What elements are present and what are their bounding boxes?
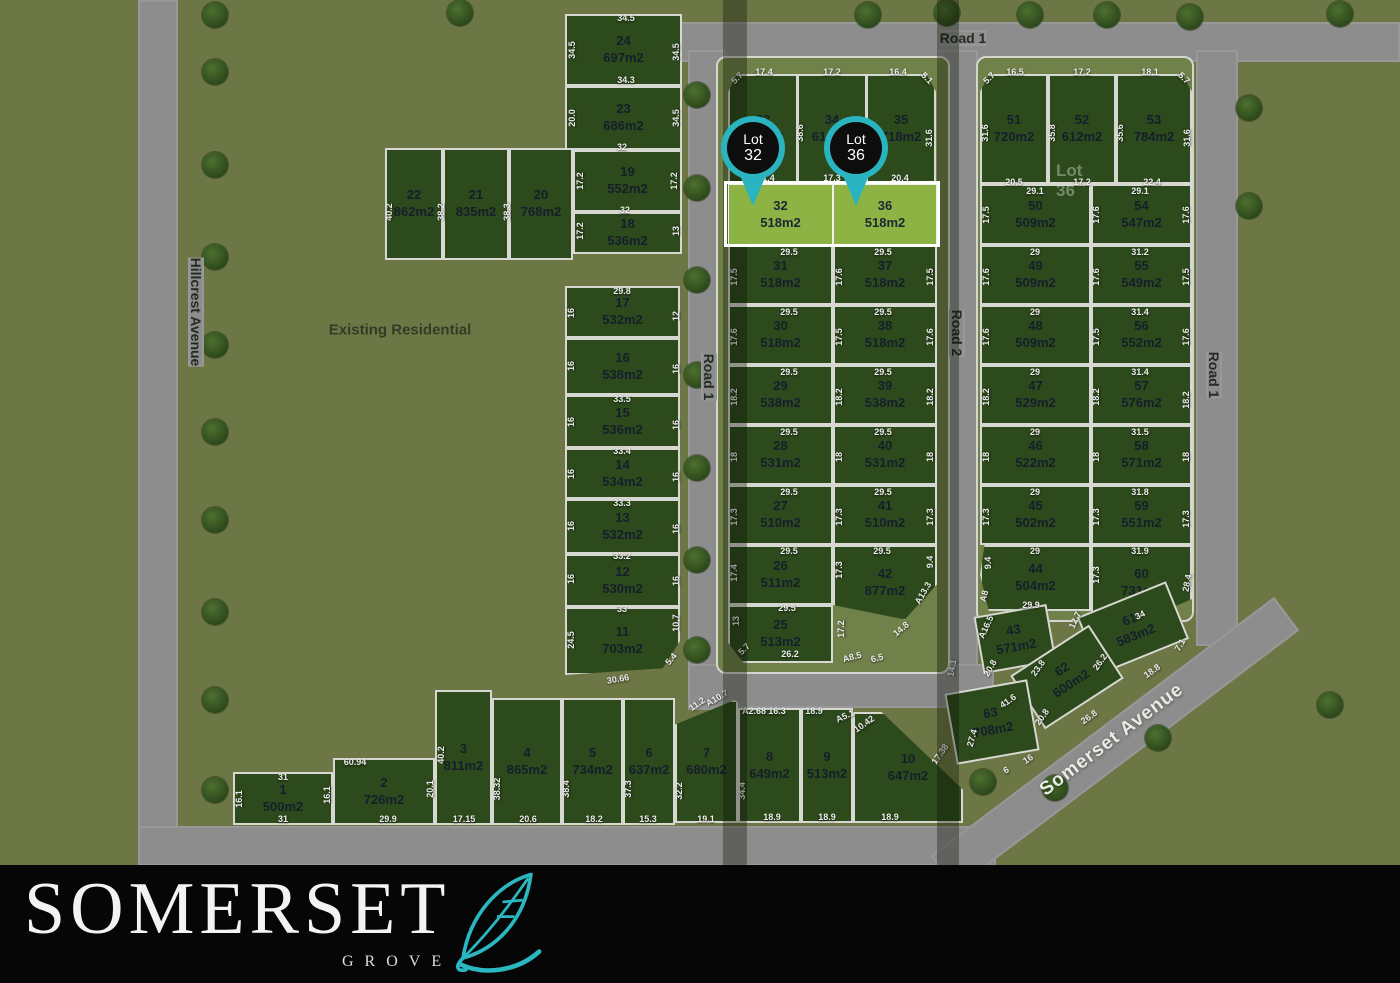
dimension-label: 17.6: [1181, 328, 1191, 346]
lot-number: 38: [878, 318, 892, 335]
dimension-label: 29.5: [874, 487, 892, 497]
lot-area: 509m2: [1015, 335, 1055, 352]
lot-area: 513m2: [807, 766, 847, 783]
dimension-label: 26.8: [1079, 708, 1099, 726]
dimension-label: 31.6: [924, 129, 934, 147]
lot-number: 1: [279, 782, 286, 799]
dimension-label: 17.5: [925, 268, 935, 286]
lot-12: 12530m2: [565, 554, 680, 607]
lot-number: 8: [766, 749, 773, 766]
dimension-label: 16: [566, 469, 576, 479]
dimension-label: 20.5: [1005, 177, 1023, 187]
tree-icon: [684, 455, 710, 481]
dimension-label: 17.6: [1091, 206, 1101, 224]
lot-area: 680m2: [686, 762, 726, 779]
dimension-label: 17.2: [823, 67, 841, 77]
lot-number: 45: [1028, 498, 1042, 515]
lot-area: 571m2: [995, 635, 1038, 659]
lot-area: 518m2: [865, 335, 905, 352]
dimension-label: 16: [566, 521, 576, 531]
lot-area: 686m2: [603, 118, 643, 135]
lot-number: 17: [615, 295, 629, 312]
dimension-label: 37.3: [623, 780, 633, 798]
dimension-label: 16: [671, 524, 681, 534]
lot-area: 865m2: [507, 762, 547, 779]
dimension-label: 33: [617, 604, 627, 614]
pin-lot-32[interactable]: Lot32: [721, 116, 785, 218]
dimension-label: 17.3: [981, 508, 991, 526]
dimension-label: 29: [1030, 367, 1040, 377]
lot-area: 538m2: [602, 367, 642, 384]
dimension-label: 18.2: [1091, 388, 1101, 406]
dimension-label: 29: [1030, 427, 1040, 437]
existing-residential-label: Existing Residential: [329, 322, 472, 339]
lot-number: 14: [615, 457, 629, 474]
lot-number: 50: [1028, 198, 1042, 215]
tree-icon: [202, 2, 228, 28]
dimension-label: 29.5: [780, 487, 798, 497]
dimension-label: 17.6: [981, 328, 991, 346]
lot-area: 504m2: [1015, 578, 1055, 595]
dimension-label: 34.5: [567, 41, 577, 59]
dimension-label: 17.5: [1091, 328, 1101, 346]
lot-number: 9: [823, 749, 830, 766]
lot-number: 6: [645, 745, 652, 762]
lot-area: 536m2: [602, 422, 642, 439]
dimension-label: 31.2: [1131, 247, 1149, 257]
dimension-label: 29.5: [780, 546, 798, 556]
dimension-label: 29.5: [873, 546, 891, 556]
dimension-label: 6: [1001, 764, 1010, 775]
lot-23: 23686m2: [565, 86, 682, 150]
lot-area: 637m2: [629, 762, 669, 779]
dimension-label: 18.2: [925, 388, 935, 406]
dimension-label: 32.2: [674, 782, 684, 800]
dimension-label: 33.2: [613, 551, 631, 561]
somerset-grove-masterplan: 24697m223686m219552m218536m222862m221835…: [0, 0, 1400, 983]
dimension-label: 33.4: [613, 446, 631, 456]
dimension-label: 29.9: [1022, 600, 1040, 610]
lot-number: 35: [894, 112, 908, 129]
dimension-label: 16.4: [889, 67, 907, 77]
lot-area: 647m2: [888, 768, 928, 785]
road-1-right: [1196, 50, 1238, 646]
tree-icon: [1177, 4, 1203, 30]
lot-number: 30: [773, 318, 787, 335]
dimension-label: 17.15: [453, 814, 476, 824]
logo-banner: SOMERSET GROVE: [0, 865, 1400, 983]
dimension-label: 29.5: [780, 247, 798, 257]
dimension-label: 29.8: [613, 286, 631, 296]
dimension-label: 20.0: [567, 109, 577, 127]
lot-area: 530m2: [602, 581, 642, 598]
dimension-label: 29.1: [1026, 186, 1044, 196]
lot-8: 8649m2: [738, 708, 801, 823]
dimension-label: 18.2: [834, 388, 844, 406]
tree-icon: [684, 175, 710, 201]
dimension-label: 13: [671, 226, 681, 236]
tree-icon: [684, 547, 710, 573]
dimension-label: 16: [671, 420, 681, 430]
dimension-label: 35.8: [1047, 124, 1057, 142]
lot-number: 18: [620, 216, 634, 233]
lot-area: 552m2: [1121, 335, 1161, 352]
dimension-label: 16: [671, 364, 681, 374]
dimension-label: 18.9: [881, 812, 899, 822]
dimension-label: 40.2: [436, 746, 446, 764]
tree-icon: [202, 152, 228, 178]
dimension-label: 60.94: [344, 757, 367, 767]
lot-number: 39: [878, 378, 892, 395]
pin-label: Lot36: [824, 116, 888, 180]
hillcrest-avenue-road: [138, 0, 178, 865]
dimension-label: 16.1: [322, 786, 332, 804]
dimension-label: 40.2: [384, 203, 394, 221]
lot-number: 15: [615, 405, 629, 422]
dimension-label: 18.1: [1141, 67, 1159, 77]
dimension-label: 29.5: [874, 307, 892, 317]
feather-icon: [442, 867, 552, 981]
road-1-right-label: Road 1: [1206, 352, 1222, 399]
lot-11: 11703m2: [565, 607, 680, 675]
logo-title: SOMERSET: [24, 867, 451, 952]
dimension-label: 35.6: [1115, 124, 1125, 142]
dimension-label: 31.4: [1131, 307, 1149, 317]
dimension-label: 34.5: [617, 13, 635, 23]
dimension-label: 17.3: [1091, 508, 1101, 526]
dimension-label: 18.9: [763, 812, 781, 822]
lot-number: 21: [469, 187, 483, 204]
tree-icon: [202, 59, 228, 85]
lot-area: 510m2: [865, 515, 905, 532]
lot-area: 768m2: [521, 204, 561, 221]
lot-area: 551m2: [1121, 515, 1161, 532]
lot-area: 536m2: [607, 233, 647, 250]
dimension-label: 29.5: [874, 427, 892, 437]
lot-number: 19: [620, 164, 634, 181]
dimension-label: 17.3: [834, 508, 844, 526]
tree-icon: [1236, 95, 1262, 121]
lot-area: 518m2: [865, 275, 905, 292]
lot-number: 24: [616, 33, 630, 50]
dimension-label: 17.2: [1073, 67, 1091, 77]
dimension-label: 34.5: [671, 109, 681, 127]
dimension-label: 16.5: [1006, 67, 1024, 77]
dimension-label: 31: [278, 814, 288, 824]
lot-area: 862m2: [394, 204, 434, 221]
dimension-label: 15.3: [639, 814, 657, 824]
dimension-label: 18: [1091, 452, 1101, 462]
lot-number: 57: [1134, 378, 1148, 395]
dimension-label: 29.5: [874, 247, 892, 257]
lot-area: 518m2: [760, 275, 800, 292]
dimension-label: 18.8: [1142, 662, 1162, 680]
lot-number: 11: [616, 624, 630, 641]
tree-icon: [1017, 2, 1043, 28]
dimension-label: 16: [566, 574, 576, 584]
lot-area: 510m2: [760, 515, 800, 532]
dimension-label: 38.32: [492, 778, 502, 801]
dimension-label: 19.1: [697, 814, 715, 824]
tree-icon: [970, 769, 996, 795]
dimension-label: 17.5: [1181, 268, 1191, 286]
dimension-label: 16: [566, 308, 576, 318]
lot-number: 23: [616, 101, 630, 118]
lot-number: 16: [615, 350, 629, 367]
lot-number: 3: [460, 741, 467, 758]
dimension-label: 31.6: [980, 124, 990, 142]
dimension-label: 17.2: [836, 620, 846, 638]
lot-area: 522m2: [1015, 455, 1055, 472]
lot-number: 13: [615, 510, 629, 527]
dimension-label: 16.1: [234, 790, 244, 808]
dimension-label: 17.5: [981, 206, 991, 224]
lot-number: 48: [1028, 318, 1042, 335]
lot-area: 703m2: [602, 641, 642, 658]
logo-subtitle: GROVE: [342, 953, 452, 971]
lot-number: 58: [1134, 438, 1148, 455]
dimension-label: 17.6: [981, 268, 991, 286]
dimension-label: 9.4: [983, 557, 993, 570]
dimension-label: 18.2: [585, 814, 603, 824]
lot-area: 511m2: [761, 575, 801, 592]
dimension-label: 16: [566, 361, 576, 371]
tree-icon: [1327, 1, 1353, 27]
dimension-label: 17.5: [834, 328, 844, 346]
dimension-label: 29: [1030, 307, 1040, 317]
lot-number: 22: [407, 187, 421, 204]
lot-area: 649m2: [749, 766, 789, 783]
lot-number: 5: [589, 745, 596, 762]
lot-area: 571m2: [1121, 455, 1161, 472]
lot-number: 54: [1134, 198, 1148, 215]
lot-number: 28: [773, 438, 787, 455]
lot-area: 529m2: [1015, 395, 1055, 412]
tree-icon: [684, 637, 710, 663]
lot-area: 500m2: [263, 799, 303, 816]
dimension-label: 18: [834, 452, 844, 462]
dimension-label: 9.4: [925, 556, 935, 569]
lot-number: 55: [1134, 258, 1148, 275]
lot-53: 53784m2: [1116, 74, 1192, 184]
dimension-label: 16: [1021, 752, 1035, 766]
lot-number: 60: [1134, 566, 1148, 583]
dimension-label: 30.66: [606, 672, 630, 686]
lot-number: 2: [380, 775, 387, 792]
lot-number: 44: [1028, 561, 1042, 578]
lot-number: 10: [901, 751, 915, 768]
tree-icon: [202, 244, 228, 270]
dimension-label: 29.5: [780, 307, 798, 317]
lot-area: 697m2: [603, 50, 643, 67]
dimension-label: 17.3: [1181, 510, 1191, 528]
lot-area: 531m2: [865, 455, 905, 472]
lot-area: 877m2: [865, 583, 905, 600]
pin-label: Lot32: [721, 116, 785, 180]
dimension-label: 29.1: [1131, 186, 1149, 196]
dimension-label: 16: [671, 576, 681, 586]
dimension-label: 34.5: [671, 43, 681, 61]
dimension-label: 17.3: [834, 561, 844, 579]
dimension-label: 29.5: [778, 603, 796, 613]
dimension-label: 26.2: [781, 649, 799, 659]
lot-area: 835m2: [456, 204, 496, 221]
lot-6: 6637m2: [623, 698, 675, 825]
subdivision-map: 24697m223686m219552m218536m222862m221835…: [0, 0, 1400, 865]
lot-number: 47: [1028, 378, 1042, 395]
dimension-label: 12: [671, 311, 681, 321]
lot-number: 20: [534, 187, 548, 204]
tree-icon: [202, 777, 228, 803]
dimension-label: 38.3: [502, 203, 512, 221]
tree-icon: [202, 332, 228, 358]
dimension-label: 16.3: [768, 706, 786, 716]
lot-number: 59: [1134, 498, 1148, 515]
dimension-label: 38.6: [795, 124, 805, 142]
tree-icon: [684, 82, 710, 108]
lot-area: 532m2: [602, 312, 642, 329]
tree-icon: [202, 507, 228, 533]
dimension-label: 17.6: [925, 328, 935, 346]
tree-icon: [447, 0, 473, 26]
tree-icon: [1145, 725, 1171, 751]
lot-area: 532m2: [602, 527, 642, 544]
lot-number: 4: [523, 745, 530, 762]
dimension-label: 29: [1030, 487, 1040, 497]
dimension-label: 29.5: [874, 367, 892, 377]
dimension-label: 29: [1030, 546, 1040, 556]
dimension-label: 29: [1030, 247, 1040, 257]
tree-icon: [202, 599, 228, 625]
dimension-label: 20.6: [519, 814, 537, 824]
dimension-label: 17.6: [1091, 268, 1101, 286]
dimension-label: 31.4: [1131, 367, 1149, 377]
hillcrest-avenue-label: Hillcrest Avenue: [188, 258, 204, 367]
lot-area: 538m2: [865, 395, 905, 412]
lot-area: 502m2: [1015, 515, 1055, 532]
tree-icon: [202, 687, 228, 713]
dimension-label: 18.2: [1181, 391, 1191, 409]
dimension-label: 33.5: [613, 394, 631, 404]
dimension-label: 32: [620, 205, 630, 215]
lot-number: 40: [878, 438, 892, 455]
lot-area: 549m2: [1121, 275, 1161, 292]
dimension-label: 18.9: [805, 706, 823, 716]
dimension-label: 17.2: [669, 172, 679, 190]
lot-9: 9513m2: [801, 708, 853, 823]
lot-16: 16538m2: [565, 338, 680, 395]
dimension-label: 31: [278, 772, 288, 782]
lot-number: 52: [1075, 112, 1089, 129]
dimension-label: 18.9: [818, 812, 836, 822]
lot-area: 726m2: [364, 792, 404, 809]
lot-area: 552m2: [607, 181, 647, 198]
lot-area: 509m2: [1015, 215, 1055, 232]
dimension-label: 10.7: [671, 614, 681, 632]
tree-icon: [1094, 2, 1120, 28]
tree-icon: [1236, 193, 1262, 219]
dimension-label: 17.6: [1181, 206, 1191, 224]
ghost-lot-label: Lot36: [1056, 161, 1082, 200]
dimension-label: 17.4: [755, 67, 773, 77]
lot-area: 734m2: [572, 762, 612, 779]
lot-number: 12: [615, 564, 629, 581]
road-1-center-label: Road 1: [701, 354, 717, 401]
dimension-label: 31.8: [1131, 487, 1149, 497]
lot-19: 19552m2: [573, 150, 682, 212]
dimension-label: 29.9: [379, 814, 397, 824]
dimension-label: 16: [671, 472, 681, 482]
dimension-label: 20.1: [425, 780, 435, 798]
lot-area: 784m2: [1134, 129, 1174, 146]
lot-number: 42: [878, 566, 892, 583]
lot-number: 51: [1007, 112, 1021, 129]
dimension-label: 31.9: [1131, 546, 1149, 556]
dimension-label: 24.5: [566, 631, 576, 649]
dimension-label: 17.6: [834, 268, 844, 286]
lot-area: 538m2: [760, 395, 800, 412]
lot-number: 26: [773, 558, 787, 575]
dimension-label: 17.3: [925, 508, 935, 526]
pin-lot-36[interactable]: Lot36: [824, 116, 888, 218]
tree-icon: [1317, 692, 1343, 718]
lot-5: 5734m2: [562, 698, 623, 825]
lot-area: 612m2: [1062, 129, 1102, 146]
lot-area: 576m2: [1121, 395, 1161, 412]
lot-number: 27: [773, 498, 787, 515]
dimension-label: 18: [981, 452, 991, 462]
lot-area: 531m2: [760, 455, 800, 472]
lot-21: 21835m2: [443, 148, 509, 260]
lot-number: 29: [773, 378, 787, 395]
tree-icon: [202, 419, 228, 445]
dimension-label: 17.2: [575, 172, 585, 190]
dimension-label: 31.5: [1131, 427, 1149, 437]
dimension-label: 18: [925, 452, 935, 462]
lot-number: 46: [1028, 438, 1042, 455]
lot-area: 720m2: [994, 129, 1034, 146]
tree-icon: [855, 2, 881, 28]
dimension-label: 29.5: [780, 427, 798, 437]
dimension-label: 16: [566, 417, 576, 427]
lot-number: 31: [773, 258, 787, 275]
lot-area: 811m2: [444, 758, 484, 775]
dimension-label: 38.2: [436, 203, 446, 221]
dimension-label: 17.2: [575, 222, 585, 240]
lot-number: 37: [878, 258, 892, 275]
dimension-label: 32: [617, 142, 627, 152]
dimension-label: 18: [1181, 452, 1191, 462]
lot-18: 18536m2: [573, 212, 682, 254]
lot-number: 53: [1147, 112, 1161, 129]
dimension-label: 31.6: [1182, 129, 1192, 147]
bottom-road: [138, 826, 996, 865]
lot-number: 41: [878, 498, 892, 515]
lot-area: 509m2: [1015, 275, 1055, 292]
lot-number: 56: [1134, 318, 1148, 335]
lot-area: 534m2: [602, 474, 642, 491]
lot-number: 49: [1028, 258, 1042, 275]
dimension-label: 33.3: [613, 498, 631, 508]
tree-icon: [684, 267, 710, 293]
dimension-label: 38.4: [561, 780, 571, 798]
lot-4: 4865m2: [492, 698, 562, 825]
lot-51: 51720m2: [980, 74, 1048, 184]
dimension-label: 34.3: [617, 75, 635, 85]
lot-number: 7: [703, 745, 710, 762]
lot-20: 20768m2: [509, 148, 573, 260]
lot-area: 547m2: [1121, 215, 1161, 232]
